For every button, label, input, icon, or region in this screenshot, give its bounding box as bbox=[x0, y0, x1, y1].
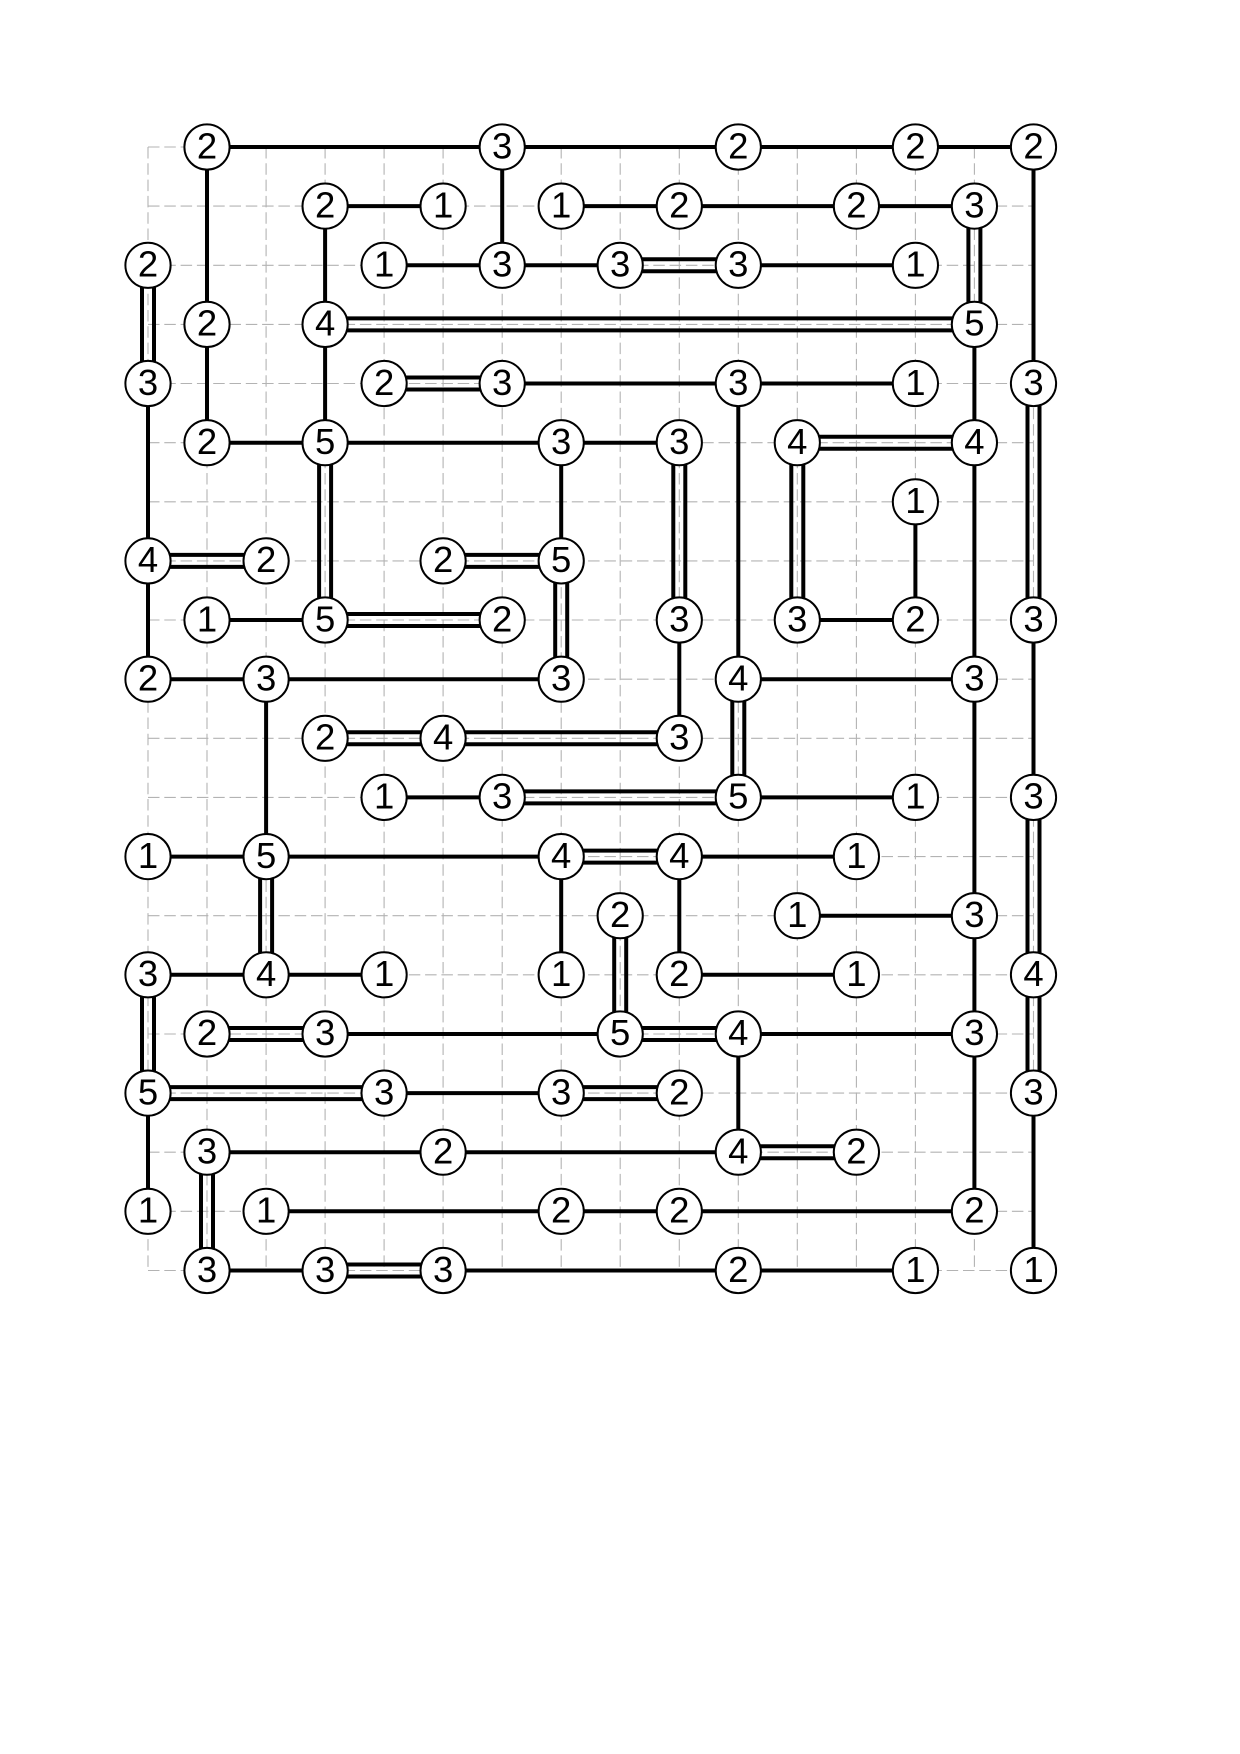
svg-text:3: 3 bbox=[551, 1071, 571, 1112]
svg-text:5: 5 bbox=[610, 1012, 630, 1053]
svg-text:1: 1 bbox=[905, 362, 925, 403]
svg-text:3: 3 bbox=[1023, 776, 1043, 817]
svg-text:1: 1 bbox=[905, 480, 925, 521]
svg-text:4: 4 bbox=[315, 303, 335, 344]
svg-text:2: 2 bbox=[433, 1131, 453, 1172]
svg-text:3: 3 bbox=[1023, 1071, 1043, 1112]
svg-text:3: 3 bbox=[728, 362, 748, 403]
svg-text:2: 2 bbox=[138, 244, 158, 285]
svg-text:2: 2 bbox=[197, 125, 217, 166]
svg-text:1: 1 bbox=[551, 953, 571, 994]
svg-text:2: 2 bbox=[374, 362, 394, 403]
svg-text:3: 3 bbox=[433, 1249, 453, 1290]
svg-text:1: 1 bbox=[787, 894, 807, 935]
svg-text:5: 5 bbox=[315, 598, 335, 639]
svg-text:1: 1 bbox=[197, 598, 217, 639]
svg-text:1: 1 bbox=[846, 835, 866, 876]
svg-text:2: 2 bbox=[492, 598, 512, 639]
svg-text:3: 3 bbox=[492, 125, 512, 166]
svg-text:1: 1 bbox=[905, 776, 925, 817]
svg-text:5: 5 bbox=[551, 539, 571, 580]
svg-text:2: 2 bbox=[610, 894, 630, 935]
svg-text:1: 1 bbox=[905, 1249, 925, 1290]
svg-text:1: 1 bbox=[551, 184, 571, 225]
svg-text:2: 2 bbox=[315, 184, 335, 225]
svg-text:3: 3 bbox=[669, 598, 689, 639]
svg-text:1: 1 bbox=[433, 184, 453, 225]
svg-text:3: 3 bbox=[197, 1131, 217, 1172]
svg-text:2: 2 bbox=[551, 1190, 571, 1231]
svg-text:3: 3 bbox=[964, 894, 984, 935]
svg-text:5: 5 bbox=[728, 776, 748, 817]
svg-text:2: 2 bbox=[964, 1190, 984, 1231]
svg-text:3: 3 bbox=[492, 244, 512, 285]
svg-text:4: 4 bbox=[964, 421, 984, 462]
svg-text:4: 4 bbox=[728, 658, 748, 699]
svg-text:3: 3 bbox=[787, 598, 807, 639]
svg-text:2: 2 bbox=[433, 539, 453, 580]
svg-text:4: 4 bbox=[256, 953, 276, 994]
svg-text:4: 4 bbox=[551, 835, 571, 876]
svg-text:4: 4 bbox=[1023, 953, 1043, 994]
svg-text:2: 2 bbox=[728, 1249, 748, 1290]
svg-text:3: 3 bbox=[315, 1249, 335, 1290]
svg-text:2: 2 bbox=[1023, 125, 1043, 166]
svg-text:5: 5 bbox=[256, 835, 276, 876]
svg-text:1: 1 bbox=[256, 1190, 276, 1231]
svg-text:3: 3 bbox=[964, 184, 984, 225]
svg-text:1: 1 bbox=[138, 1190, 158, 1231]
svg-text:3: 3 bbox=[197, 1249, 217, 1290]
svg-text:1: 1 bbox=[905, 244, 925, 285]
svg-text:4: 4 bbox=[433, 717, 453, 758]
svg-text:3: 3 bbox=[315, 1012, 335, 1053]
svg-text:2: 2 bbox=[197, 1012, 217, 1053]
svg-text:4: 4 bbox=[787, 421, 807, 462]
svg-text:2: 2 bbox=[256, 539, 276, 580]
svg-text:3: 3 bbox=[610, 244, 630, 285]
svg-text:2: 2 bbox=[905, 125, 925, 166]
svg-text:2: 2 bbox=[846, 1131, 866, 1172]
svg-text:3: 3 bbox=[964, 1012, 984, 1053]
svg-text:3: 3 bbox=[138, 362, 158, 403]
svg-text:5: 5 bbox=[315, 421, 335, 462]
svg-text:4: 4 bbox=[669, 835, 689, 876]
svg-text:1: 1 bbox=[374, 953, 394, 994]
svg-text:3: 3 bbox=[964, 658, 984, 699]
svg-text:1: 1 bbox=[846, 953, 866, 994]
svg-text:4: 4 bbox=[728, 1131, 748, 1172]
svg-text:3: 3 bbox=[1023, 598, 1043, 639]
svg-text:3: 3 bbox=[1023, 362, 1043, 403]
svg-text:1: 1 bbox=[1023, 1249, 1043, 1290]
svg-text:3: 3 bbox=[492, 362, 512, 403]
svg-text:3: 3 bbox=[728, 244, 748, 285]
svg-text:2: 2 bbox=[669, 1071, 689, 1112]
svg-text:3: 3 bbox=[669, 717, 689, 758]
svg-text:5: 5 bbox=[138, 1071, 158, 1112]
svg-text:1: 1 bbox=[374, 776, 394, 817]
svg-text:1: 1 bbox=[374, 244, 394, 285]
svg-text:3: 3 bbox=[374, 1071, 394, 1112]
svg-text:2: 2 bbox=[197, 303, 217, 344]
svg-text:3: 3 bbox=[669, 421, 689, 462]
svg-text:2: 2 bbox=[138, 658, 158, 699]
svg-text:2: 2 bbox=[905, 598, 925, 639]
svg-text:2: 2 bbox=[669, 1190, 689, 1231]
svg-text:2: 2 bbox=[728, 125, 748, 166]
svg-text:2: 2 bbox=[315, 717, 335, 758]
svg-text:3: 3 bbox=[551, 658, 571, 699]
svg-text:5: 5 bbox=[964, 303, 984, 344]
svg-text:1: 1 bbox=[138, 835, 158, 876]
svg-text:3: 3 bbox=[256, 658, 276, 699]
svg-text:2: 2 bbox=[669, 184, 689, 225]
svg-text:3: 3 bbox=[551, 421, 571, 462]
svg-text:2: 2 bbox=[846, 184, 866, 225]
svg-text:2: 2 bbox=[669, 953, 689, 994]
svg-text:3: 3 bbox=[492, 776, 512, 817]
svg-text:2: 2 bbox=[197, 421, 217, 462]
svg-text:3: 3 bbox=[138, 953, 158, 994]
svg-text:4: 4 bbox=[138, 539, 158, 580]
svg-text:4: 4 bbox=[728, 1012, 748, 1053]
